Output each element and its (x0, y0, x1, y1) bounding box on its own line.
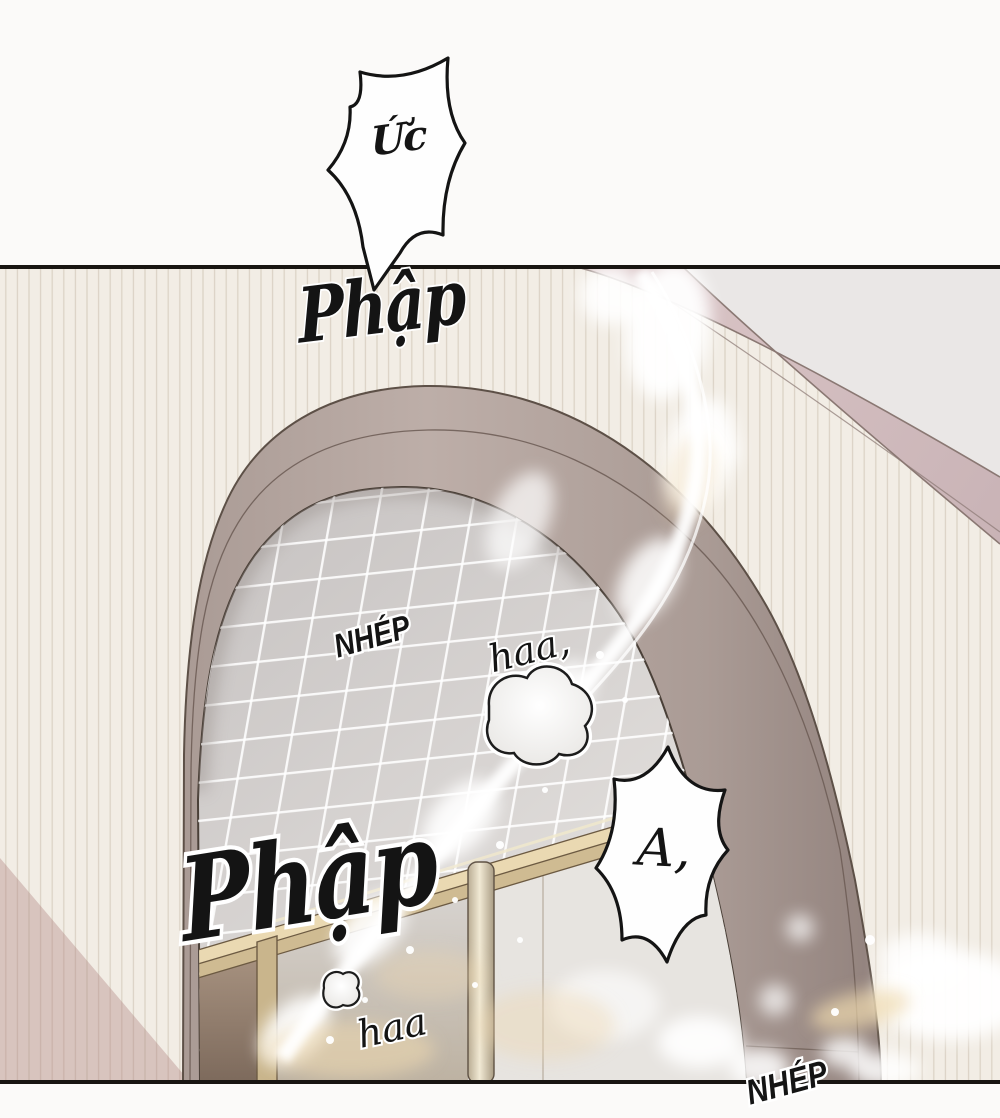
breath-puff-bottom (323, 972, 359, 1007)
sfx-uc: Ức (370, 115, 426, 163)
sfx-phap-top: Phập (296, 259, 467, 355)
sfx-a-bubble: A, (636, 822, 693, 877)
panel-artwork (0, 0, 1000, 1118)
comic-page: Ức Phập NHÉP haa, Phập A, haa NHÉP (0, 0, 1000, 1118)
interior-wall (198, 960, 257, 1082)
breath-puff-top (487, 667, 592, 765)
